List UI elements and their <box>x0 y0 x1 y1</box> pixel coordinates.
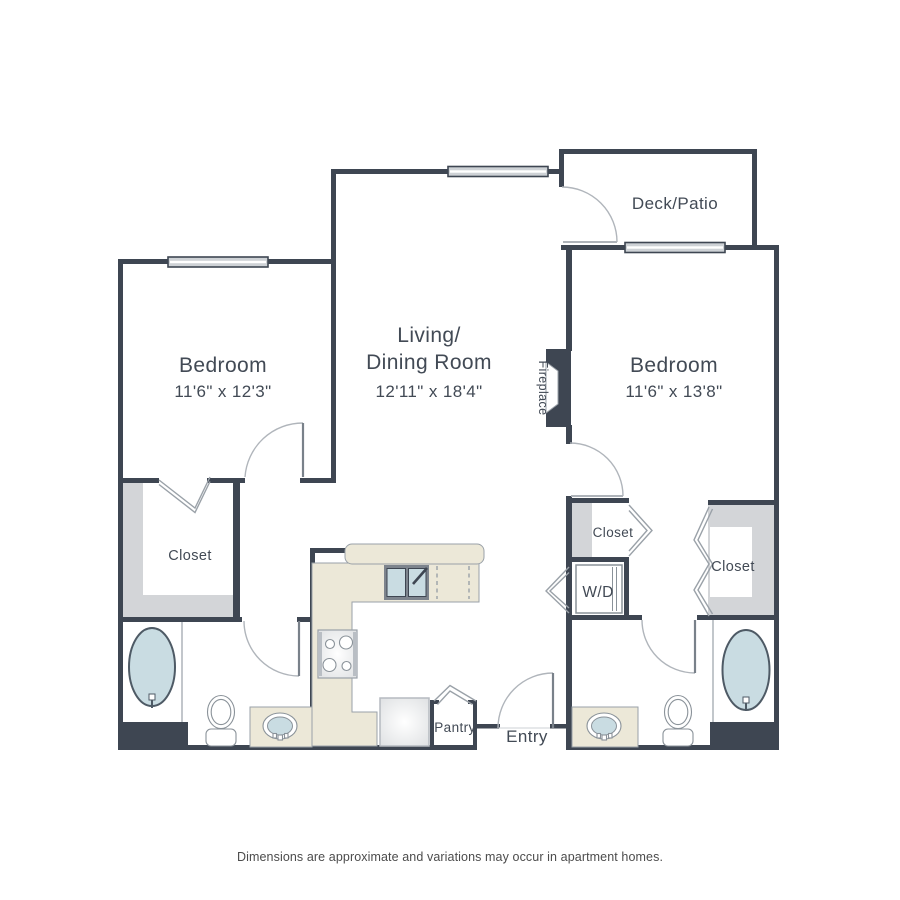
stove-burner <box>323 659 336 672</box>
toilet <box>663 696 693 747</box>
disclaimer-text: Dimensions are approximate and variation… <box>237 850 663 864</box>
toilet-bowl-inner <box>668 699 688 724</box>
kitchen <box>312 544 484 746</box>
doors <box>159 187 713 728</box>
wall-deck-top <box>559 149 757 154</box>
door-arc-bath2 <box>642 620 695 673</box>
closet-right-label: Closet <box>711 559 755 575</box>
walls <box>118 149 779 750</box>
sink-handle <box>285 734 289 739</box>
bedroom-right-dims: 11'6" x 13'8" <box>625 382 722 401</box>
wall-entry-a <box>475 724 500 729</box>
wall-living-right-a <box>566 248 572 351</box>
toilet <box>206 696 236 747</box>
vanity-sink <box>263 713 297 740</box>
toilet-tank <box>663 729 693 746</box>
door-arc-entry <box>498 673 553 728</box>
closet-hall-label: Closet <box>593 525 634 540</box>
sink-basin <box>268 717 293 735</box>
door-arc-deck <box>562 187 617 242</box>
wall-closet-right-top <box>708 500 779 505</box>
kitchen-sink <box>384 565 429 600</box>
stove-body <box>318 630 357 678</box>
floor-plan-drawing: Bedroom 11'6" x 12'3" Living/ Dining Roo… <box>0 0 900 900</box>
breakfast-bar <box>345 544 484 564</box>
wall-living-right-b <box>566 425 572 444</box>
toilet-bowl-inner <box>211 699 231 724</box>
floor-plan-page: Bedroom 11'6" x 12'3" Living/ Dining Roo… <box>0 0 900 900</box>
door-bifold-closet-left <box>159 477 210 508</box>
wall-bedroom1-bottom-c <box>300 478 336 483</box>
door-bifold-closet-right <box>694 507 709 616</box>
sink-basin <box>592 717 617 735</box>
wall-living-right-c <box>566 496 572 750</box>
toilet-tank <box>206 729 236 746</box>
wall-closet-hall-top <box>566 498 629 503</box>
sink-handle <box>273 734 277 739</box>
stove-rail-left <box>318 632 322 676</box>
sink-handle <box>597 734 601 739</box>
door-bifold-wd <box>546 567 569 613</box>
living-label-line2: Dining Room <box>366 351 492 374</box>
entry-label: Entry <box>506 727 548 746</box>
stove-burner <box>326 640 335 649</box>
closet-left-bottom-band <box>123 595 233 617</box>
closet-left-label: Closet <box>168 548 212 564</box>
closet-hall-band <box>572 503 592 557</box>
wall-right-exterior <box>774 245 779 750</box>
wall-wd-right <box>624 562 629 620</box>
stove-rail-right <box>353 632 357 676</box>
sink-spout <box>602 735 607 740</box>
window-glass <box>170 261 266 263</box>
fireplace-label: Fireplace <box>536 360 550 415</box>
bedroom-left-label: Bedroom <box>179 354 267 377</box>
wall-living-left <box>331 172 336 483</box>
window-glass <box>627 246 723 248</box>
stove-burner <box>340 636 353 649</box>
washer-dryer-label: W/D <box>582 584 613 601</box>
living-dims: 12'11" x 18'4" <box>375 382 482 401</box>
living-label-line1: Living/ <box>397 324 461 347</box>
door-arc-bedroom1 <box>245 423 303 477</box>
window-bedroom2 <box>625 243 725 253</box>
labels: Bedroom 11'6" x 12'3" Living/ Dining Roo… <box>168 194 755 864</box>
sink-handle <box>609 734 613 739</box>
stove <box>318 630 357 678</box>
wall-closet-hall-bottom <box>566 557 629 562</box>
refrigerator <box>380 698 429 746</box>
sink-spout <box>278 735 283 740</box>
windows <box>168 167 725 268</box>
kitchen-sink-basin-left <box>387 569 406 597</box>
door-arc-bath1 <box>244 621 299 676</box>
wall-deck-left <box>559 149 564 187</box>
pantry-label: Pantry <box>434 720 475 735</box>
wall-bath2-top-a <box>570 615 642 620</box>
wall-left-exterior <box>118 259 123 750</box>
vanity-sink <box>587 713 621 740</box>
wall-closet-left-right <box>233 478 240 622</box>
window-bedroom1 <box>168 257 268 267</box>
tub-faucet <box>743 697 749 703</box>
wall-block-bath2 <box>710 722 776 747</box>
wall-deck-right <box>752 149 757 250</box>
bedroom-left-dims: 11'6" x 12'3" <box>174 382 271 401</box>
stove-burner <box>342 662 351 671</box>
tub-faucet <box>149 694 155 700</box>
wall-kitchen-stub <box>310 548 345 553</box>
window-glass <box>450 170 546 172</box>
wall-bedroom1-bottom-a <box>118 478 159 483</box>
deck-patio-label: Deck/Patio <box>632 194 718 213</box>
wall-block-bath1 <box>121 722 188 747</box>
wall-bath1-top-a <box>118 617 242 622</box>
bedroom-right-label: Bedroom <box>630 354 718 377</box>
window-living <box>448 167 548 177</box>
door-arc-bedroom2 <box>570 443 623 496</box>
